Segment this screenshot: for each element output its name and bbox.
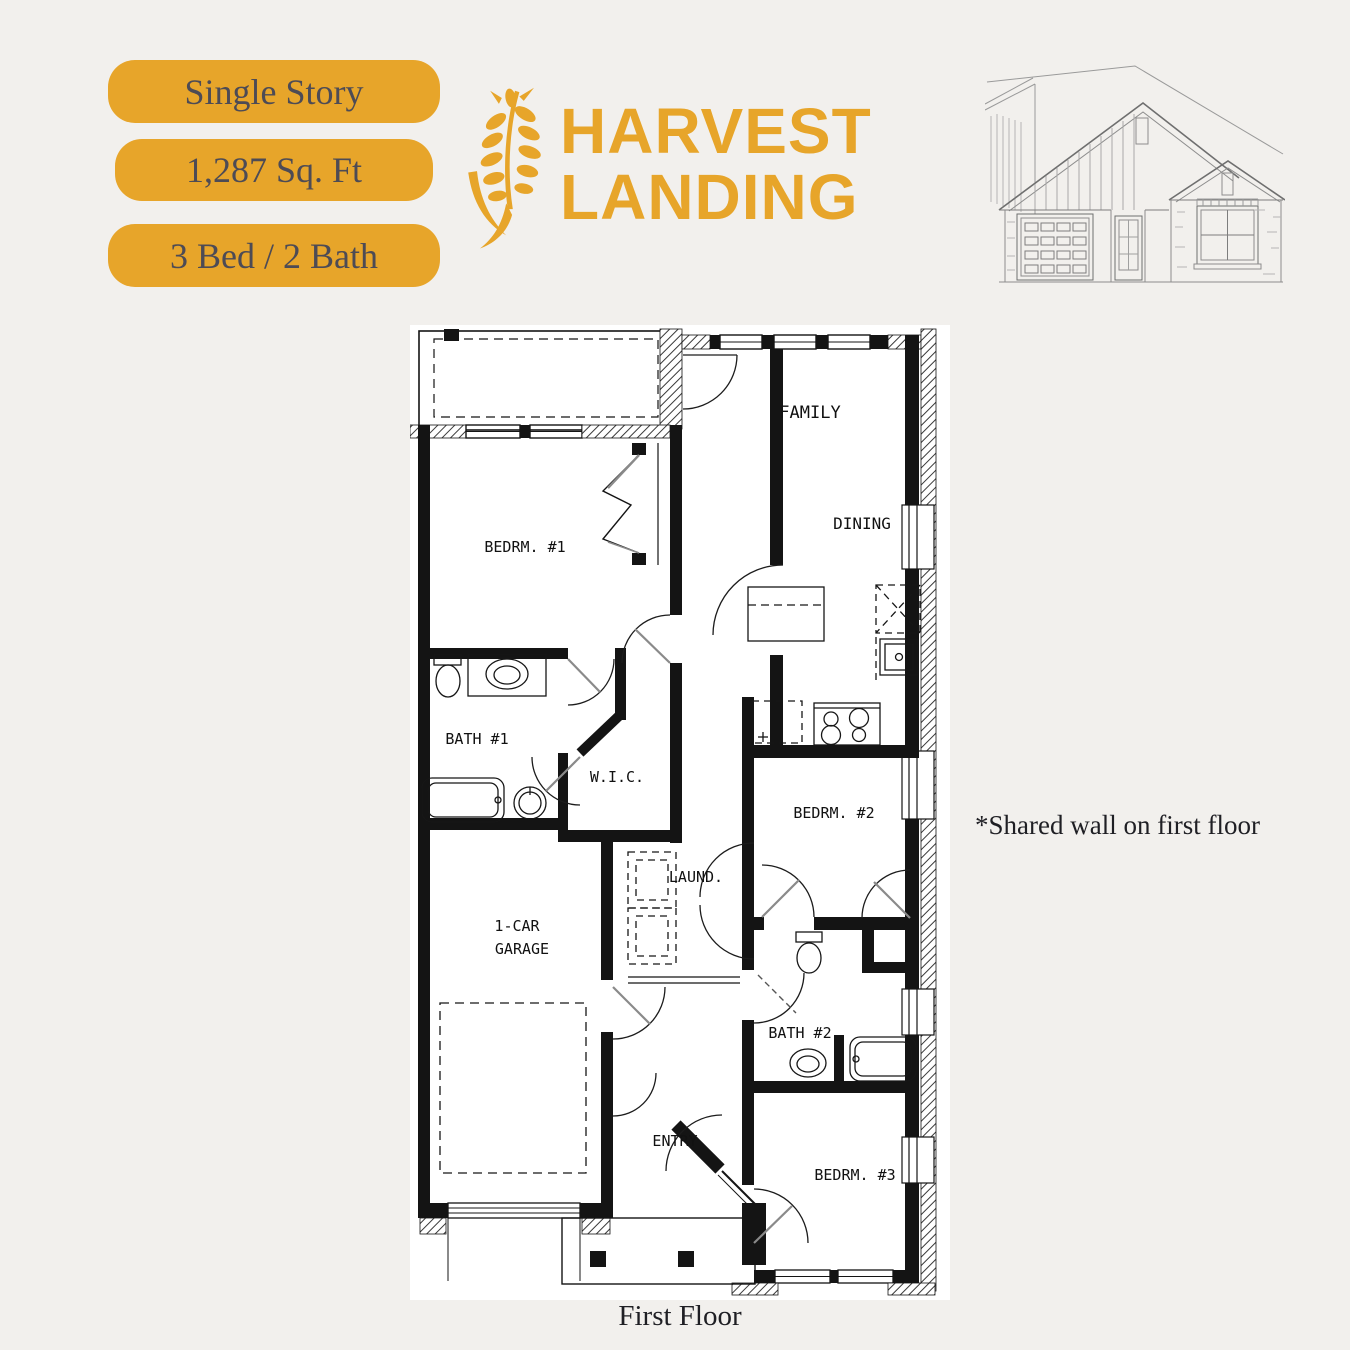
kitchen-island [748,587,824,641]
room-label-bedrm1: BEDRM. #1 [484,538,565,556]
spec-badge-bed-bath: 3 Bed / 2 Bath [108,224,440,287]
room-label-wic: W.I.C. [590,768,644,786]
room-label-bedrm3: BEDRM. #3 [814,1166,895,1184]
bathtub-icon [422,778,504,822]
logo-line2: LANDING [560,164,872,230]
floor-caption: First Floor [540,1300,820,1333]
room-label-bath1: BATH #1 [445,730,508,748]
sink-icon [790,1049,826,1077]
plan-doors [532,355,910,1243]
spec-badge-label: 1,287 Sq. Ft [186,149,362,191]
shared-wall-annotation: *Shared wall on first floor [975,810,1260,841]
room-label-laund: LAUND. [669,868,723,886]
stove-icon [814,703,880,745]
room-label-garage-line2: GARAGE [495,940,549,958]
room-label-bedrm2: BEDRM. #2 [793,804,874,822]
spec-badge-label: Single Story [184,71,363,113]
room-label-family: FAMILY [779,403,840,423]
toilet-icon [796,932,822,942]
spec-badge-sqft: 1,287 Sq. Ft [115,139,433,201]
floor-plan-sheet: FAMILY DINING BEDRM. #1 BATH #1 W.I.C. L… [410,325,950,1300]
logo-line1: HARVEST [560,98,872,164]
room-label-dining: DINING [833,514,891,533]
logo-wordmark: HARVEST LANDING [560,98,872,230]
house-elevation-sketch [985,42,1285,292]
room-label-bath2: BATH #2 [768,1024,831,1042]
room-label-entry: ENTRY [652,1132,697,1150]
car-pad [440,1003,586,1173]
spec-badge-single-story: Single Story [108,60,440,123]
room-label-garage-line1: 1-CAR [494,917,540,935]
flyer-page: { "colors": { "background": "#f2f0ed", "… [0,0,1350,1350]
spec-badge-label: 3 Bed / 2 Bath [170,235,378,277]
wheat-icon [458,84,553,264]
